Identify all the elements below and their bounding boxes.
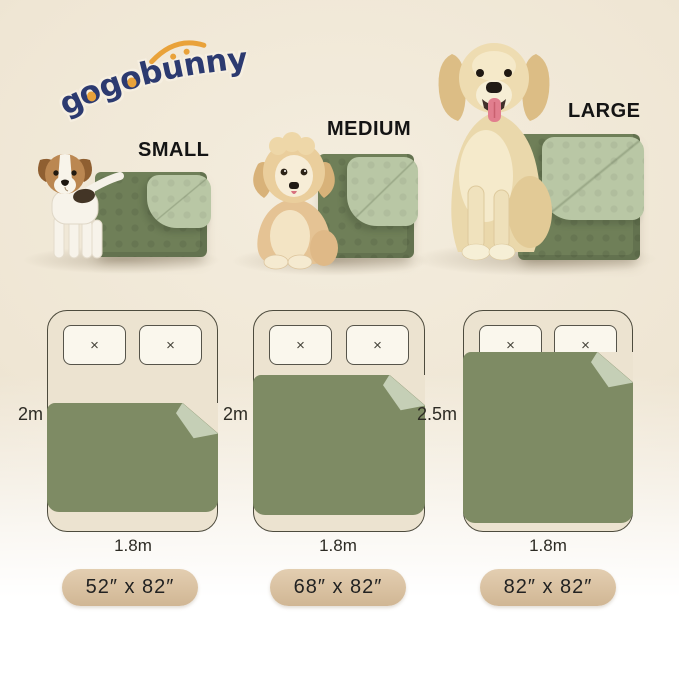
bed-width-label-medium: 1.8m — [298, 536, 378, 556]
bed-length-label-medium: 2m — [204, 404, 248, 425]
fluffy-puppy-image — [238, 130, 350, 270]
pillow: × — [63, 325, 126, 365]
golden-retriever-image — [422, 24, 566, 270]
pillow-x-mark: × — [506, 338, 515, 353]
bed-diagram-medium: × × — [253, 310, 425, 532]
pillow-x-mark: × — [581, 338, 590, 353]
pillow-x-mark: × — [373, 338, 382, 353]
pillow: × — [346, 325, 409, 365]
blanket-on-bed-small — [47, 403, 218, 512]
pillow-x-mark: × — [166, 338, 175, 353]
bed-length-label-small: 2m — [0, 404, 43, 425]
bed-width-label-large: 1.8m — [508, 536, 588, 556]
bed-length-label-large: 2.5m — [413, 404, 457, 425]
blanket-folded-corner — [147, 175, 211, 228]
bed-width-label-small: 1.8m — [93, 536, 173, 556]
size-label-large: LARGE — [568, 100, 641, 123]
blanket-size-badge-large: 82″ x 82″ — [480, 569, 616, 606]
pillow-x-mark: × — [90, 338, 99, 353]
blanket-on-bed-medium — [253, 375, 425, 515]
size-label-small: SMALL — [138, 139, 209, 162]
blanket-on-bed-large — [463, 352, 633, 523]
size-label-medium: MEDIUM — [327, 118, 411, 141]
size-chart-infographic: gogobunny — [0, 0, 679, 679]
blanket-folded-corner — [347, 157, 418, 226]
bed-diagram-large: × × — [463, 310, 633, 532]
blanket-size-badge-small: 52″ x 82″ — [62, 569, 198, 606]
pillow: × — [269, 325, 332, 365]
bed-diagram-small: × × — [47, 310, 218, 532]
pillow: × — [139, 325, 202, 365]
jack-russell-puppy-image — [24, 146, 146, 268]
blanket-size-badge-medium: 68″ x 82″ — [270, 569, 406, 606]
blanket-folded-corner — [591, 352, 633, 388]
pillow-x-mark: × — [296, 338, 305, 353]
